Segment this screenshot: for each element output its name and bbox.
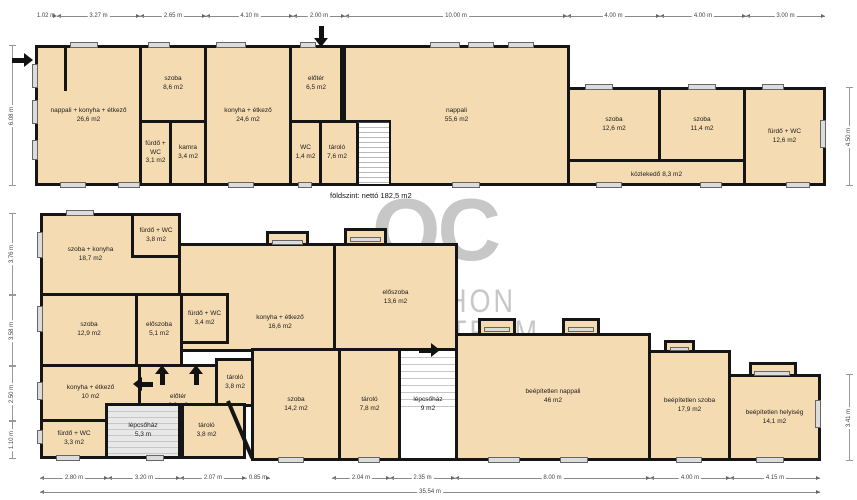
room-area: 6,5 m2 <box>306 84 326 93</box>
window <box>560 457 588 463</box>
dimension-label: 8.00 m <box>541 474 563 482</box>
dimension-label: 2.80 m <box>63 474 85 482</box>
room-szoba-4: szoba 12,9 m2 <box>40 293 138 367</box>
room-tarolo-lower: tároló 3,8 m2 <box>181 403 246 459</box>
room-area: 12,9 m2 <box>77 330 101 339</box>
dimension-label: 4.00 m <box>692 12 714 20</box>
room-furdo-wc-4: fürdő + WC 3,4 m2 <box>180 293 229 344</box>
dimension-label: 4.00 m <box>679 474 701 482</box>
room-area: 7,8 m2 <box>360 405 380 414</box>
dimension-label: 2.65 m <box>162 12 184 20</box>
room-furdo-wc-1: fürdő + WC 3,1 m2 <box>139 120 172 186</box>
room-area: 5,3 m <box>135 431 151 440</box>
room-furdo-wc-2: fürdő + WC 12,6 m2 <box>743 87 826 186</box>
room-label: tároló <box>361 396 377 405</box>
dimension-label: 3.58 m <box>8 319 16 341</box>
dimension-label: 4.50 m <box>845 125 853 147</box>
room-area: 9 m2 <box>421 405 435 414</box>
room-label: beépítetlen nappali <box>526 388 581 397</box>
room-label: WC <box>300 144 311 153</box>
room-label: előtér <box>308 75 324 84</box>
window <box>32 64 38 88</box>
room-szoba-1: szoba 8,6 m2 <box>139 45 207 123</box>
room-area: 1,4 m2 <box>296 153 316 162</box>
window <box>568 327 594 332</box>
room-area: 14,2 m2 <box>284 405 308 414</box>
room-szoba-3: szoba 11,4 m2 <box>658 87 746 162</box>
window <box>688 84 716 90</box>
room-eloszoba-2: előszoba 13,6 m2 <box>333 243 458 352</box>
room-label: előtér <box>170 393 186 402</box>
room-szoba-2: szoba 12,6 m2 <box>567 87 661 162</box>
window <box>37 382 43 400</box>
window <box>146 455 164 461</box>
room-area: 3,8 m2 <box>146 236 166 245</box>
room-label: fürdő + WC <box>57 430 90 439</box>
room-beepitetlen-szoba: beépítetlen szoba 17,9 m2 <box>648 350 731 461</box>
room-area: 46 m2 <box>544 397 562 406</box>
window <box>484 327 510 332</box>
room-label: szoba + konyha <box>68 246 114 255</box>
room-label: előszoba <box>382 289 408 298</box>
window <box>272 240 303 245</box>
room-area: 3,4 m2 <box>178 153 198 162</box>
room-label: konyha + étkező <box>224 107 272 116</box>
dimension-label: 35.54 m <box>417 488 443 496</box>
window <box>762 84 784 90</box>
room-label: szoba <box>80 321 97 330</box>
room-label: tároló <box>227 374 243 383</box>
dimension-label: 3.27 m <box>87 12 109 20</box>
room-eloszoba-1: előszoba 5,1 m2 <box>135 293 183 367</box>
room-area: 7,6 m2 <box>327 153 347 162</box>
window <box>754 371 790 376</box>
window <box>820 120 826 148</box>
window <box>350 237 381 242</box>
window <box>37 430 43 444</box>
window <box>37 306 43 332</box>
dimension-label: 2.00 m <box>308 12 330 20</box>
room-area: 10 m2 <box>81 393 99 402</box>
staircase <box>356 122 389 184</box>
dimension-label: 0.85 m <box>247 474 269 482</box>
dimension-total: 35.54 m <box>40 488 820 496</box>
room-area: 13,6 m2 <box>384 298 408 307</box>
window <box>60 182 86 188</box>
dimension-label: 2.07 m <box>202 474 224 482</box>
room-label: lépcsőház <box>413 396 442 405</box>
dimension: 2.80 m <box>40 474 108 482</box>
dimension-label: 10.00 m <box>443 12 469 20</box>
room-label: szoba <box>287 396 304 405</box>
room-label: fürdő + WC <box>188 310 221 319</box>
dimension: 2.65 m <box>140 12 206 20</box>
window <box>148 42 170 48</box>
dimension-label: 3.20 m <box>133 474 155 482</box>
room-area: 5,1 m2 <box>149 330 169 339</box>
window <box>216 42 246 48</box>
room-eloter: előtér 6,5 m2 <box>289 45 343 123</box>
room-area: 8,3 m2 <box>662 171 682 180</box>
room-label: nappali + konyha + étkező <box>51 107 127 116</box>
room-area: 24,6 m2 <box>236 116 260 125</box>
room-area: 26,6 m2 <box>77 116 101 125</box>
room-area: 11,4 m2 <box>690 125 713 134</box>
dimension-label: 4.10 m <box>238 12 260 20</box>
room-label: tároló <box>329 144 345 153</box>
dimension: 6.08 m <box>8 45 16 186</box>
room-label: szoba <box>605 116 622 125</box>
room-area: 3,1 m2 <box>146 157 166 166</box>
dimension: 2.07 m <box>180 474 246 482</box>
room-label: fürdő + WC <box>768 128 801 137</box>
room-label: konyha + étkező <box>256 314 304 323</box>
dimension: 1.10 m <box>8 421 16 459</box>
room-lepcsohaz-2: lépcsőház 9 m2 <box>398 348 458 461</box>
dimension-label: 2.35 m <box>411 474 433 482</box>
window <box>585 84 613 90</box>
dimension: 3.76 m <box>8 213 16 295</box>
dimension: 2.00 m <box>293 12 345 20</box>
dimension: 3.58 m <box>8 295 16 366</box>
room-area: 12,6 m2 <box>602 125 626 134</box>
window <box>468 42 494 48</box>
room-label: nappali <box>446 107 467 116</box>
window <box>37 232 43 258</box>
floor-caption: földszint: nettó 182,5 m2 <box>330 191 412 200</box>
window <box>70 42 98 48</box>
room-nappali-konyha-etkezo: nappali + konyha + étkező 26,6 m2 <box>35 45 142 186</box>
room-area: 3,3 m2 <box>64 439 84 448</box>
window <box>756 457 784 463</box>
room-area: 14,1 m2 <box>763 418 787 427</box>
window <box>676 457 702 463</box>
dimension: 2.04 m <box>332 474 390 482</box>
room-label: beépítetlen szoba <box>664 397 715 406</box>
dimension-label: 6.08 m <box>8 104 16 126</box>
room-szoba-5: szoba 14,2 m2 <box>251 348 341 461</box>
window <box>278 457 304 463</box>
room-area: 3,8 m2 <box>225 383 245 392</box>
room-label: szoba <box>693 116 710 125</box>
room-area: 16,6 m2 <box>268 323 292 332</box>
window <box>298 182 312 188</box>
dimension: 3.20 m <box>108 474 180 482</box>
dimension-label: 4.15 m <box>764 474 786 482</box>
room-label: előszoba <box>146 321 172 330</box>
dimension: 4.50 m <box>845 87 853 186</box>
dimension: 3.41 m <box>845 374 853 461</box>
window <box>488 457 520 463</box>
dimension: 4.00 m <box>650 474 730 482</box>
dimension: 2.35 m <box>390 474 455 482</box>
window <box>815 400 821 428</box>
room-tarolo-3: tároló 7,8 m2 <box>338 348 401 461</box>
room-lepcsohaz-1: lépcsőház 5,3 m <box>105 403 181 459</box>
window <box>452 182 480 188</box>
window <box>670 347 689 351</box>
room-area: 18,7 m2 <box>79 255 103 264</box>
window <box>56 455 80 461</box>
room-label: fürdő + WC <box>142 140 169 158</box>
dimension: 4.00 m <box>660 12 746 20</box>
dimension-label: 1.02 m <box>35 12 57 20</box>
room-area: 12,6 m2 <box>773 137 797 146</box>
window <box>786 182 810 188</box>
window <box>32 100 38 124</box>
room-label: közlekedő <box>631 171 660 180</box>
dimension: 1.02 m <box>35 12 57 20</box>
dimension: 4.10 m <box>206 12 293 20</box>
room-furdo-wc-3: fürdő + WC 3,8 m2 <box>131 213 181 258</box>
room-area: 17,9 m2 <box>678 406 702 415</box>
window <box>430 42 460 48</box>
room-label: tároló <box>198 422 214 431</box>
dimension-label: 3.00 m <box>774 12 796 20</box>
room-area: 55,6 m2 <box>445 116 469 125</box>
dimension: 2.50 m <box>8 366 16 421</box>
room-area: 3,4 m2 <box>195 319 215 328</box>
room-label: kamra <box>179 144 197 153</box>
dimension: 8.00 m <box>455 474 650 482</box>
room-konyha-etkezo-1: konyha + étkező 24,6 m2 <box>204 45 292 186</box>
window <box>508 42 534 48</box>
room-area: 3,8 m2 <box>197 431 217 440</box>
dimension-label: 2.04 m <box>350 474 372 482</box>
window <box>700 182 722 188</box>
dimension-label: 3.41 m <box>845 406 853 428</box>
window <box>32 140 38 160</box>
dimension-label: 4.00 m <box>602 12 624 20</box>
window <box>228 182 254 188</box>
room-area: 8,6 m2 <box>163 84 183 93</box>
room-label: szoba <box>164 75 181 84</box>
dimension: 10.00 m <box>345 12 567 20</box>
room-label: lépcsőház <box>128 422 157 431</box>
partition-wall <box>64 45 67 91</box>
room-kamra: kamra 3,4 m2 <box>169 120 207 186</box>
window <box>596 182 622 188</box>
room-label: konyha + étkező <box>67 384 115 393</box>
window <box>118 182 140 188</box>
room-label: beépítetlen helyiség <box>746 409 804 418</box>
dimension: 3.00 m <box>746 12 825 20</box>
room-wc: WC 1,4 m2 <box>289 120 322 186</box>
dimension-label: 1.10 m <box>8 429 16 451</box>
dimension-label: 3.76 m <box>8 243 16 265</box>
dimension: 4.00 m <box>567 12 660 20</box>
window <box>358 457 380 463</box>
room-beepitetlen-nappali: beépítetlen nappali 46 m2 <box>455 333 651 461</box>
dimension-label: 2.50 m <box>8 382 16 404</box>
dimension: 3.27 m <box>57 12 140 20</box>
room-label: fürdő + WC <box>139 227 172 236</box>
dimension: 0.85 m <box>246 474 270 482</box>
room-furdo-wc-5: fürdő + WC 3,3 m2 <box>40 419 108 459</box>
room-beepitetlen-helyiseg: beépítetlen helyiség 14,1 m2 <box>728 374 821 461</box>
window <box>66 210 94 216</box>
floorplan-canvas: OC OTTHON CENTRUM nappali + konyha + étk… <box>0 0 857 500</box>
room-tarolo-upper: tároló 3,8 m2 <box>215 358 255 407</box>
dimension: 4.15 m <box>730 474 820 482</box>
